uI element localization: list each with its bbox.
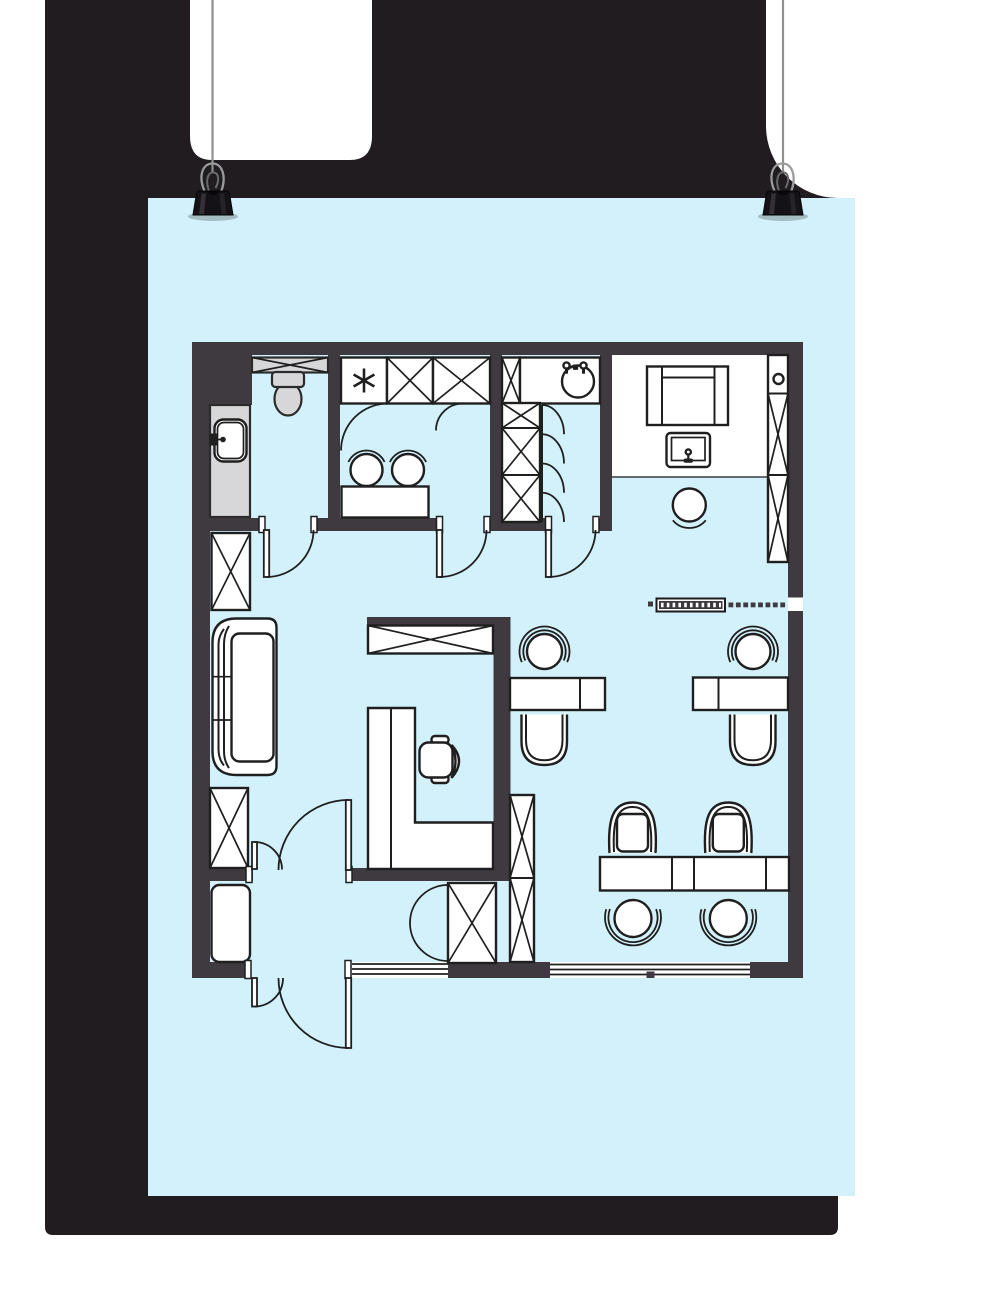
display-cabinet bbox=[768, 355, 788, 562]
task-chair-2 bbox=[736, 634, 771, 669]
right-wall-window bbox=[788, 598, 803, 612]
closet-cabinet bbox=[502, 403, 540, 522]
windows bbox=[352, 962, 750, 978]
shoe-bench bbox=[212, 885, 251, 962]
task-chair-1 bbox=[527, 634, 562, 669]
mockup-stage bbox=[0, 0, 1000, 1300]
basin-left bbox=[351, 454, 383, 486]
basin-right bbox=[392, 454, 424, 486]
desk-1 bbox=[510, 678, 605, 710]
vanity-counter bbox=[342, 487, 429, 518]
lounge-round-chair bbox=[673, 489, 706, 522]
meeting-arm-chair bbox=[705, 803, 752, 854]
meeting-arm-chair bbox=[609, 803, 656, 854]
poster-scene bbox=[0, 0, 1000, 1300]
guest-cup-chair-2 bbox=[730, 715, 776, 766]
guest-cup-chair-1 bbox=[522, 715, 568, 766]
toilet-tank bbox=[272, 372, 304, 387]
desk-2 bbox=[693, 678, 788, 711]
left-couch bbox=[213, 619, 277, 776]
lounge-sofa bbox=[647, 367, 728, 426]
wc-faucet bbox=[210, 434, 218, 446]
